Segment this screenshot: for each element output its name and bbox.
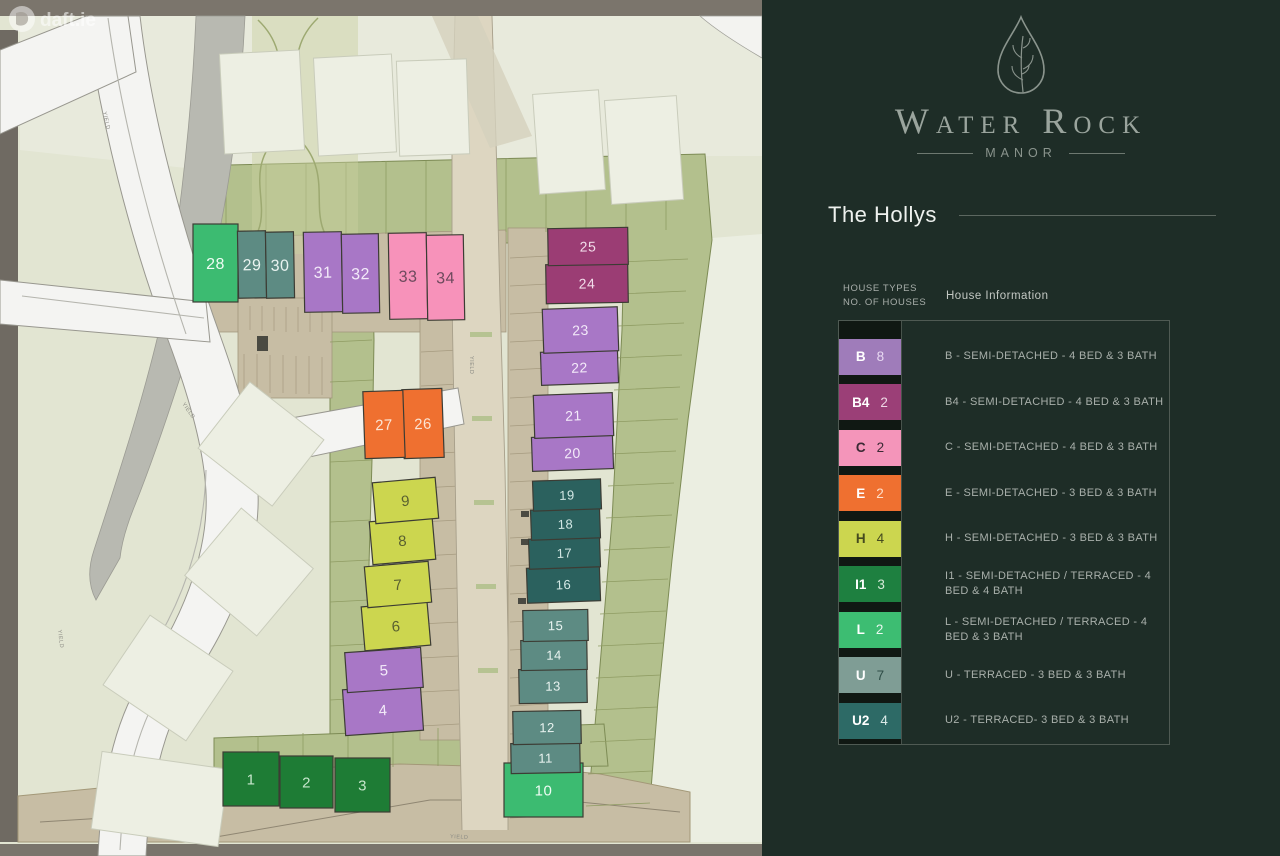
house-number: 19	[559, 487, 575, 503]
house-type-description: I1 - SEMI-DETACHED / TERRACED - 4 BED & …	[945, 569, 1169, 599]
house-number: 16	[556, 577, 572, 593]
house-type-description: H - SEMI-DETACHED - 3 BED & 3 BATH	[945, 531, 1169, 546]
water-drop-icon	[986, 12, 1056, 104]
house-unit-7: 7	[364, 561, 431, 607]
house-unit-1: 1	[223, 752, 279, 806]
legend-header-left: HOUSE TYPES NO. OF HOUSES	[843, 282, 926, 310]
legend-rows: B8B - SEMI-DETACHED - 4 BED & 3 BATHB42B…	[839, 334, 1169, 744]
house-type-count: 4	[880, 713, 888, 728]
legend-table: B8B - SEMI-DETACHED - 4 BED & 3 BATHB42B…	[838, 320, 1170, 745]
house-type-code: E	[856, 486, 865, 501]
house-number: 8	[397, 533, 407, 551]
legend-swatch-E: E2	[839, 475, 901, 511]
legend-header-line2: NO. OF HOUSES	[843, 296, 926, 310]
house-number: 31	[313, 265, 332, 282]
house-unit-13: 13	[519, 668, 588, 703]
house-number: 14	[546, 648, 562, 663]
legend-swatch-I1: I13	[839, 566, 901, 602]
house-type-code: H	[856, 531, 866, 546]
house-unit-25: 25	[548, 227, 629, 265]
map-edge-top	[0, 0, 762, 16]
screenshot: 1234567891011121314151617181920212223242…	[0, 0, 1280, 856]
house-unit-24: 24	[546, 263, 629, 303]
house-number: 24	[579, 275, 596, 291]
house-unit-9: 9	[372, 477, 438, 523]
house-type-count: 4	[877, 531, 885, 546]
legend-row-C: C2C - SEMI-DETACHED - 4 BED & 3 BATH	[839, 425, 1169, 471]
house-unit-18: 18	[530, 508, 600, 540]
house-number: 28	[206, 256, 225, 273]
house-number: 30	[270, 258, 289, 275]
house-unit-19: 19	[532, 479, 601, 511]
house-unit-16: 16	[526, 566, 600, 604]
house-number: 34	[436, 270, 455, 287]
house-unit-27: 27	[363, 390, 405, 458]
section-title: The Hollys	[828, 202, 937, 228]
house-number: 9	[400, 493, 410, 511]
house-number: 15	[548, 618, 564, 633]
legend-row-L: L2L - SEMI-DETACHED / TERRACED - 4 BED &…	[839, 607, 1169, 653]
house-unit-2: 2	[280, 756, 333, 808]
legend-row-E: E2E - SEMI-DETACHED - 3 BED & 3 BATH	[839, 471, 1169, 517]
house-unit-32: 32	[341, 234, 379, 314]
house-unit-11: 11	[511, 742, 581, 773]
legend-row-I1: I13I1 - SEMI-DETACHED / TERRACED - 4 BED…	[839, 562, 1169, 608]
house-type-count: 2	[877, 440, 885, 455]
house-number: 11	[538, 751, 553, 766]
house-type-description: L - SEMI-DETACHED / TERRACED - 4 BED & 3…	[945, 615, 1169, 645]
house-unit-28: 28	[193, 224, 238, 302]
house-number: 13	[545, 679, 561, 694]
house-unit-26: 26	[402, 388, 444, 458]
house-type-count: 2	[876, 486, 884, 501]
legend-row-H: H4H - SEMI-DETACHED - 3 BED & 3 BATH	[839, 516, 1169, 562]
house-type-count: 3	[877, 577, 885, 592]
subtitle-rule-left	[917, 153, 973, 154]
legend-swatch-B4: B42	[839, 384, 901, 420]
brand-logo	[762, 12, 1280, 104]
legend-row-U2: U24U2 - TERRACED- 3 BED & 3 BATH	[839, 698, 1169, 744]
house-unit-31: 31	[303, 232, 342, 313]
house-unit-33: 33	[388, 233, 427, 320]
house-number: 2	[302, 774, 311, 791]
house-number: 32	[351, 266, 370, 283]
house-number: 27	[375, 417, 393, 435]
house-number: 23	[572, 322, 589, 339]
house-type-code: U	[856, 668, 866, 683]
legend-swatch-U: U7	[839, 657, 901, 693]
house-unit-22: 22	[540, 350, 618, 386]
house-number: 22	[571, 359, 588, 376]
house-unit-20: 20	[531, 435, 613, 472]
legend-row-B: B8B - SEMI-DETACHED - 4 BED & 3 BATH	[839, 334, 1169, 380]
house-type-description: B4 - SEMI-DETACHED - 4 BED & 3 BATH	[945, 395, 1169, 410]
house-unit-17: 17	[528, 537, 600, 569]
legend-swatch-L: L2	[839, 612, 901, 648]
house-unit-5: 5	[345, 647, 424, 692]
house-unit-34: 34	[426, 235, 464, 321]
legend-header-right: House Information	[946, 290, 1048, 302]
house-number: 1	[247, 771, 256, 788]
parking-area	[238, 298, 332, 398]
house-type-count: 2	[876, 622, 884, 637]
subtitle-rule-right	[1069, 153, 1125, 154]
house-number: 26	[414, 416, 432, 434]
watermark-text: daft.ie	[40, 10, 96, 31]
legend-row-U: U7U - TERRACED - 3 BED & 3 BATH	[839, 653, 1169, 699]
house-type-code: L	[857, 622, 865, 637]
legend-swatch-U2: U24	[839, 703, 901, 739]
house-type-description: C - SEMI-DETACHED - 4 BED & 3 BATH	[945, 440, 1169, 455]
house-type-count: 8	[877, 349, 885, 364]
house-type-count: 2	[880, 395, 888, 410]
house-number: 33	[398, 269, 417, 286]
legend-row-B4: B42B4 - SEMI-DETACHED - 4 BED & 3 BATH	[839, 380, 1169, 426]
house-unit-6: 6	[361, 601, 431, 651]
house-unit-23: 23	[542, 307, 618, 354]
house-number: 12	[539, 720, 555, 735]
site-plan-svg: 1234567891011121314151617181920212223242…	[0, 0, 762, 856]
yield-label: YIELD	[468, 356, 474, 374]
info-panel: Water Rock MANOR The Hollys HOUSE TYPES …	[762, 0, 1280, 856]
house-unit-15: 15	[523, 609, 589, 641]
house-type-count: 7	[877, 668, 885, 683]
house-number: 21	[565, 407, 582, 424]
brand-subtitle: MANOR	[985, 146, 1057, 160]
brand-name: Water Rock	[762, 100, 1280, 142]
house-type-description: U - TERRACED - 3 BED & 3 BATH	[945, 668, 1169, 683]
house-number: 6	[391, 618, 401, 636]
legend-header-line1: HOUSE TYPES	[843, 282, 926, 296]
house-unit-21: 21	[533, 393, 613, 439]
house-type-code: B	[856, 349, 866, 364]
house-number: 17	[557, 545, 573, 561]
house-unit-3: 3	[335, 758, 390, 812]
house-type-description: E - SEMI-DETACHED - 3 BED & 3 BATH	[945, 486, 1169, 501]
house-unit-30: 30	[265, 232, 294, 298]
house-type-description: B - SEMI-DETACHED - 4 BED & 3 BATH	[945, 349, 1169, 364]
legend-swatch-C: C2	[839, 430, 901, 466]
house-type-code: I1	[855, 577, 866, 592]
house-number: 3	[358, 777, 367, 794]
house-type-code: C	[856, 440, 866, 455]
house-number: 20	[564, 445, 581, 462]
house-unit-12: 12	[513, 710, 582, 744]
house-number: 10	[535, 782, 553, 799]
house-type-code: U2	[852, 713, 869, 728]
legend-swatch-H: H4	[839, 521, 901, 557]
brand-subtitle-row: MANOR	[762, 146, 1280, 160]
house-number: 25	[580, 238, 597, 254]
watermark: daft.ie	[9, 6, 96, 32]
house-unit-29: 29	[237, 231, 266, 298]
section-heading-row: The Hollys	[828, 202, 1216, 228]
site-plan-map: 1234567891011121314151617181920212223242…	[0, 0, 762, 856]
parking-marker	[257, 336, 268, 351]
house-number: 4	[378, 702, 388, 720]
map-edge-left	[0, 30, 18, 842]
house-unit-14: 14	[521, 639, 588, 670]
house-number: 29	[242, 257, 261, 274]
house-type-code: B4	[852, 395, 869, 410]
house-number: 7	[393, 577, 403, 595]
house-type-description: U2 - TERRACED- 3 BED & 3 BATH	[945, 713, 1169, 728]
section-rule	[959, 215, 1216, 216]
legend-swatch-B: B8	[839, 339, 901, 375]
house-number: 18	[558, 516, 574, 532]
house-number: 5	[379, 662, 389, 680]
yield-label: YIELD	[450, 834, 469, 841]
